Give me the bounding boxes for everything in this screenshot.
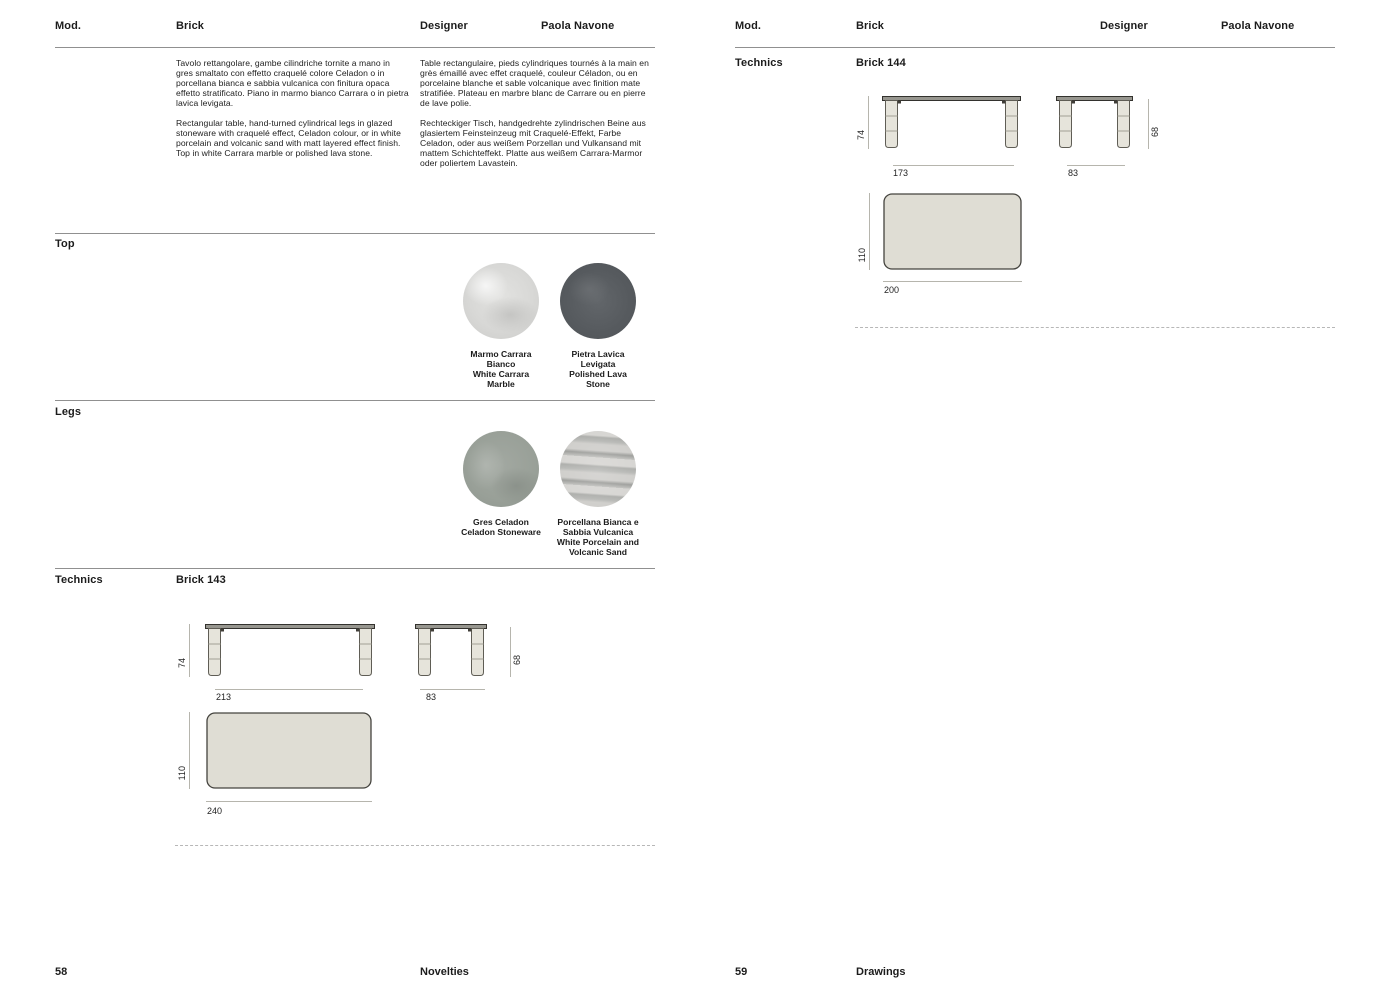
column-header-designer: Designer	[1100, 20, 1148, 32]
designer-name: Paola Navone	[541, 20, 614, 32]
front-height-dim-line	[189, 624, 190, 677]
front-height-dim: 74	[856, 130, 867, 140]
header-rule	[735, 47, 1335, 48]
plan-width-dim: 240	[207, 806, 222, 816]
model-name: Brick	[856, 20, 884, 32]
front-width-dim-line	[893, 165, 1014, 166]
swatch-polished-lava-stone	[560, 263, 636, 339]
front-width-dim: 213	[216, 692, 231, 702]
swatch-label-white-porcelain-volcanic-sand: Porcellana Bianca e Sabbia Vulcanica Whi…	[540, 517, 656, 557]
side-width-dim-line	[1067, 165, 1125, 166]
description-french: Table rectangulaire, pieds cylindriques …	[420, 58, 653, 108]
side-width-dim: 83	[1068, 168, 1078, 178]
front-width-dim: 173	[893, 168, 908, 178]
column-header-mod: Mod.	[55, 20, 81, 32]
swatch-label-polished-lava-stone: Pietra Lavica Levigata Polished Lava Sto…	[540, 349, 656, 389]
designer-name: Paola Navone	[1221, 20, 1294, 32]
footer-section-label: Drawings	[856, 966, 906, 978]
plan-depth-dim-line	[869, 193, 870, 270]
legs-section-rule	[55, 400, 655, 401]
plan-depth-dim: 110	[857, 248, 868, 262]
catalog-spread: { "colors": { "text": "#1c1c1c", "rule":…	[0, 0, 1388, 1001]
side-view-drawing	[1056, 96, 1133, 149]
technics-section-label: Technics	[55, 574, 103, 586]
description-italian: Tavolo rettangolare, gambe cilindriche t…	[176, 58, 409, 108]
side-view-drawing	[415, 624, 487, 677]
plan-width-dim-line	[206, 801, 372, 802]
page-number: 58	[55, 966, 67, 978]
swatch-white-porcelain-volcanic-sand	[560, 431, 636, 507]
page-number: 59	[735, 966, 747, 978]
front-height-dim-line	[868, 96, 869, 149]
plan-width-dim-line	[883, 281, 1022, 282]
model-name: Brick	[176, 20, 204, 32]
column-header-mod: Mod.	[735, 20, 761, 32]
plan-view-drawing	[206, 712, 372, 789]
footer-section-label: Novelties	[420, 966, 469, 978]
description-english: Rectangular table, hand-turned cylindric…	[176, 118, 409, 158]
side-height-dim-line	[510, 627, 511, 677]
header-rule	[55, 47, 655, 48]
plan-view-drawing	[883, 193, 1022, 270]
column-header-designer: Designer	[420, 20, 468, 32]
dashed-divider	[855, 327, 1335, 328]
plan-width-dim: 200	[884, 285, 899, 295]
swatch-white-carrara-marble	[463, 263, 539, 339]
technics-section-rule	[55, 568, 655, 569]
legs-section-label: Legs	[55, 406, 81, 418]
top-section-label: Top	[55, 238, 75, 250]
description-german: Rechteckiger Tisch, handgedrehte zylindr…	[420, 118, 653, 168]
technics-model-name: Brick 144	[856, 57, 906, 69]
technics-model-name: Brick 143	[176, 574, 226, 586]
side-width-dim: 83	[426, 692, 436, 702]
side-height-dim: 68	[512, 655, 523, 665]
side-height-dim-line	[1148, 99, 1149, 149]
plan-depth-dim-line	[189, 712, 190, 789]
side-width-dim-line	[420, 689, 485, 690]
swatch-celadon-stoneware	[463, 431, 539, 507]
technics-section-label: Technics	[735, 57, 783, 69]
front-height-dim: 74	[177, 658, 188, 668]
top-section-rule	[55, 233, 655, 234]
front-width-dim-line	[215, 689, 363, 690]
dashed-divider	[175, 845, 655, 846]
side-height-dim: 68	[1150, 127, 1161, 137]
front-view-drawing	[882, 96, 1021, 149]
front-view-drawing	[205, 624, 375, 677]
description-col-2: Table rectangulaire, pieds cylindriques …	[420, 58, 653, 168]
plan-depth-dim: 110	[177, 766, 188, 780]
description-col-1: Tavolo rettangolare, gambe cilindriche t…	[176, 58, 409, 158]
